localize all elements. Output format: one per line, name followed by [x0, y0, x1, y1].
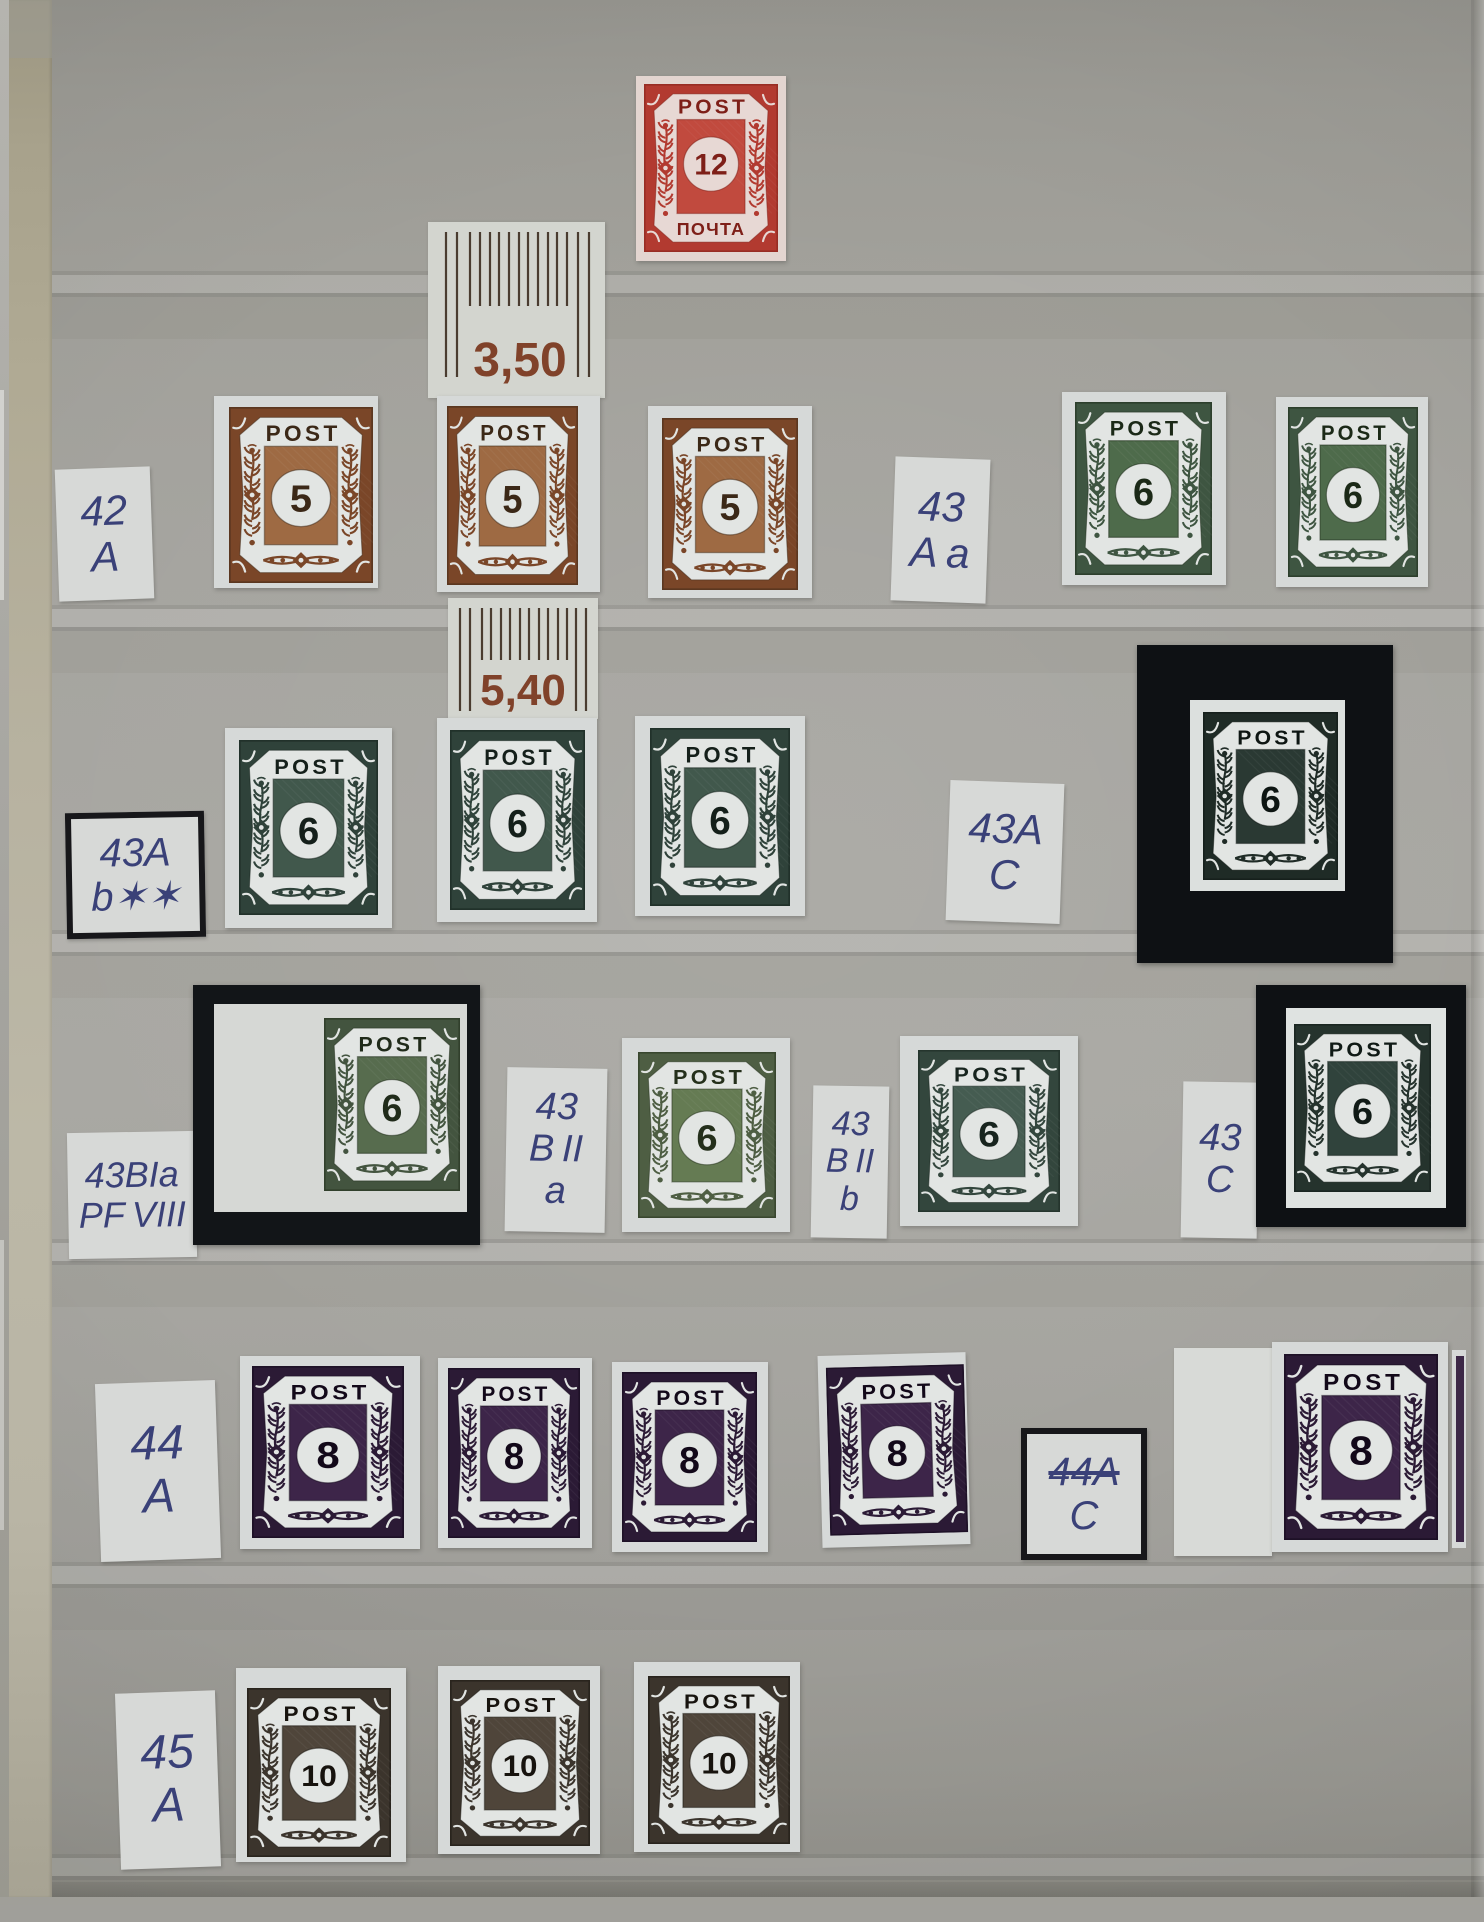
- svg-text:3,50: 3,50: [473, 334, 566, 387]
- svg-text:POST: POST: [486, 1695, 559, 1717]
- svg-text:POST: POST: [678, 96, 748, 119]
- svg-text:6: 6: [978, 1114, 1000, 1154]
- svg-text:8: 8: [1349, 1427, 1373, 1473]
- svg-text:6: 6: [507, 802, 528, 846]
- svg-text:POST: POST: [1110, 417, 1182, 441]
- svg-text:6: 6: [696, 1118, 717, 1159]
- svg-text:POST: POST: [1329, 1039, 1401, 1062]
- svg-text:10: 10: [301, 1759, 337, 1793]
- svg-text:8: 8: [504, 1436, 524, 1477]
- svg-text:POST: POST: [291, 1381, 370, 1405]
- svg-text:6: 6: [1133, 471, 1154, 513]
- svg-text:8: 8: [679, 1439, 700, 1481]
- svg-text:POST: POST: [480, 421, 548, 446]
- svg-text:POST: POST: [686, 743, 759, 768]
- svg-text:8: 8: [316, 1435, 339, 1476]
- svg-text:POST: POST: [673, 1067, 745, 1089]
- svg-text:ПОЧТА: ПОЧТА: [677, 219, 745, 239]
- svg-text:POST: POST: [484, 744, 554, 770]
- svg-text:POST: POST: [697, 432, 768, 456]
- svg-text:POST: POST: [684, 1690, 758, 1713]
- svg-text:POST: POST: [482, 1383, 551, 1406]
- svg-text:POST: POST: [1323, 1370, 1403, 1395]
- svg-text:12: 12: [694, 149, 727, 182]
- svg-text:5: 5: [502, 477, 522, 521]
- svg-text:POST: POST: [1321, 422, 1389, 445]
- svg-text:POST: POST: [1237, 727, 1307, 750]
- svg-text:8: 8: [886, 1432, 908, 1474]
- svg-text:POST: POST: [656, 1387, 726, 1410]
- svg-text:6: 6: [1352, 1090, 1373, 1131]
- svg-text:POST: POST: [274, 754, 347, 779]
- svg-text:POST: POST: [954, 1064, 1028, 1086]
- svg-text:6: 6: [382, 1087, 403, 1129]
- svg-text:5,40: 5,40: [480, 666, 566, 715]
- svg-text:6: 6: [1260, 779, 1281, 820]
- svg-text:POST: POST: [266, 422, 341, 447]
- svg-text:10: 10: [503, 1751, 538, 1783]
- svg-text:6: 6: [709, 800, 731, 843]
- svg-text:6: 6: [1343, 475, 1363, 517]
- svg-text:6: 6: [298, 810, 319, 853]
- svg-text:POST: POST: [861, 1380, 934, 1404]
- svg-text:5: 5: [720, 486, 741, 528]
- svg-text:10: 10: [701, 1746, 736, 1780]
- svg-text:POST: POST: [284, 1702, 359, 1726]
- svg-text:5: 5: [290, 478, 312, 520]
- svg-text:POST: POST: [359, 1033, 430, 1057]
